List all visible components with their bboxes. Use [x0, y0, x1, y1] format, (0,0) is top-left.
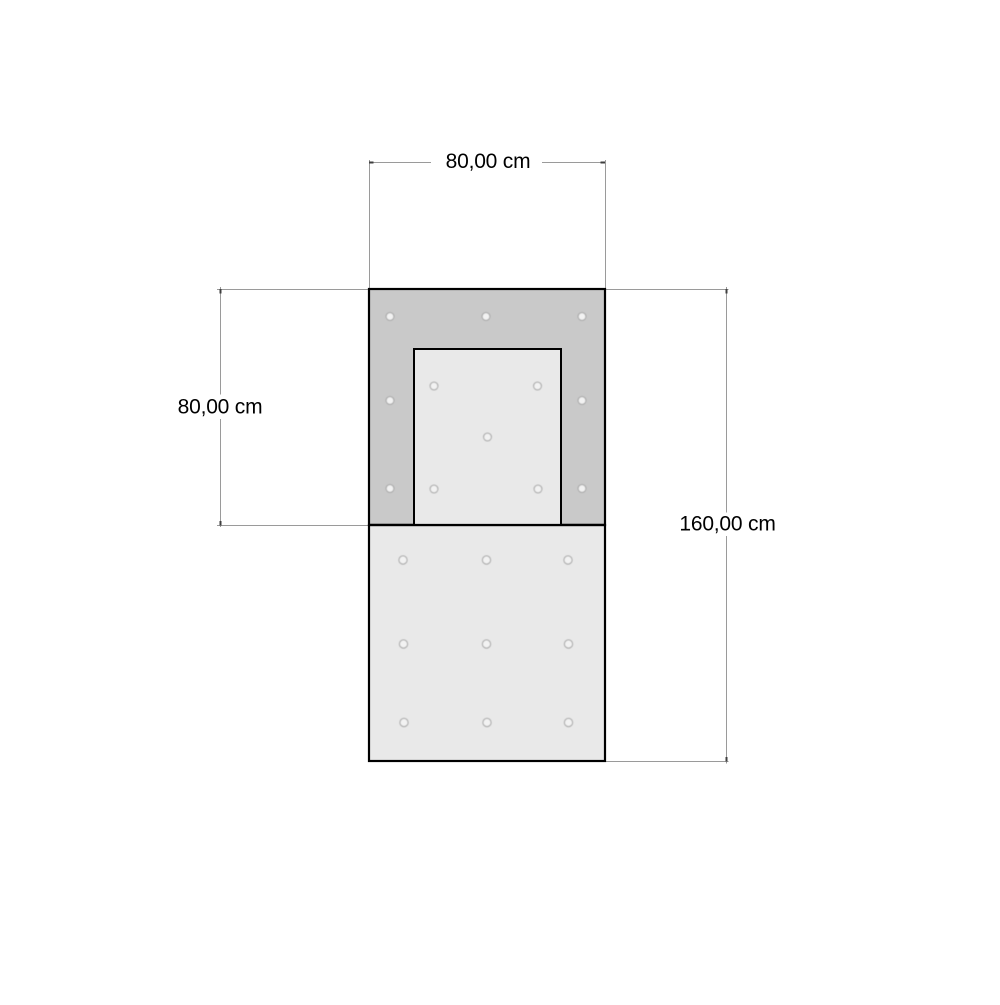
svg-text:160,00 cm: 160,00 cm [679, 512, 775, 535]
svg-text:80,00 cm: 80,00 cm [446, 150, 531, 173]
svg-text:80,00 cm: 80,00 cm [178, 396, 263, 419]
